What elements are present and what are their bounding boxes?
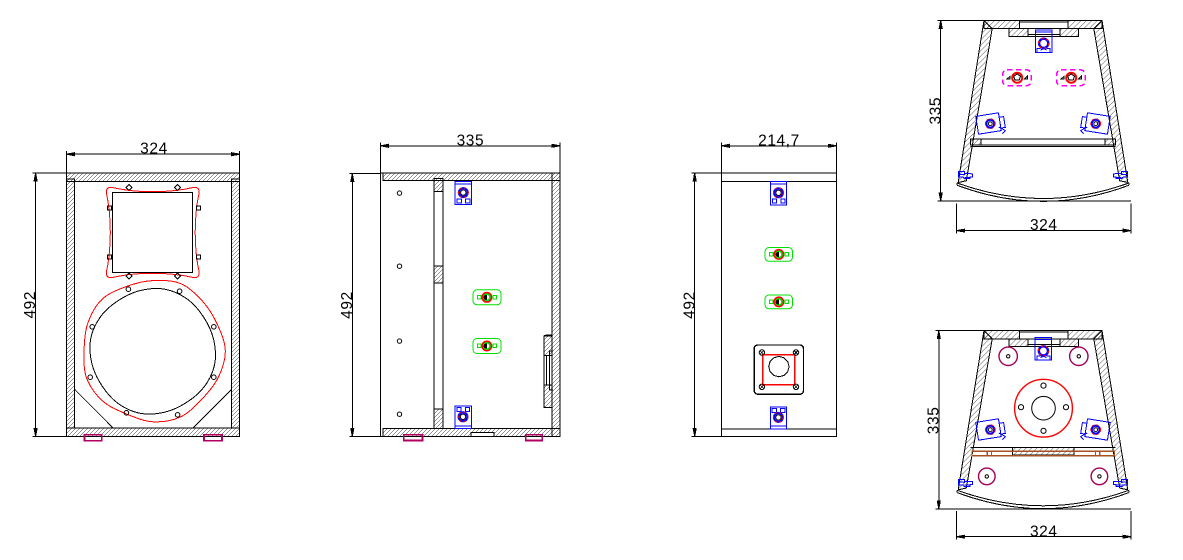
svg-text:335: 335 [925,407,942,435]
svg-text:492: 492 [339,291,356,319]
svg-text:324: 324 [1030,217,1058,234]
svg-text:324: 324 [1030,523,1058,540]
svg-text:492: 492 [22,291,39,319]
svg-text:324: 324 [140,141,168,158]
svg-text:214,7: 214,7 [758,132,800,149]
svg-text:335: 335 [457,133,485,150]
svg-text:335: 335 [927,97,944,125]
svg-text:492: 492 [681,291,698,319]
